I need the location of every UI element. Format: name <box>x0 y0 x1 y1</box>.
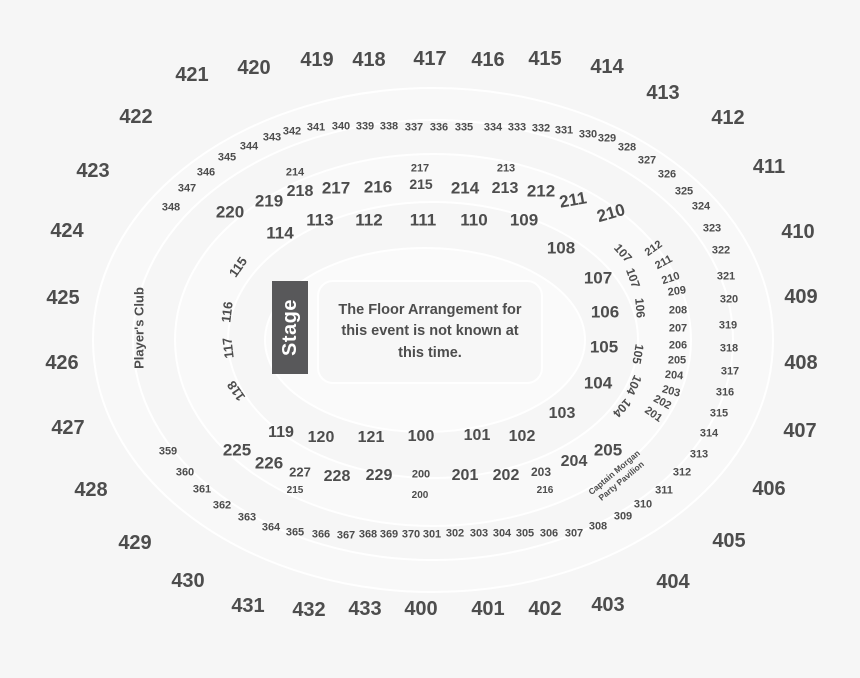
section-label-208[interactable]: 208 <box>669 306 687 317</box>
section-label-108[interactable]: 108 <box>547 240 575 257</box>
section-label-112[interactable]: 112 <box>355 212 382 229</box>
section-label-430[interactable]: 430 <box>171 571 204 591</box>
section-label-119[interactable]: 119 <box>268 425 294 441</box>
section-label-432[interactable]: 432 <box>292 600 325 620</box>
section-label-204[interactable]: 204 <box>664 370 683 383</box>
section-label-329[interactable]: 329 <box>598 134 616 145</box>
section-label-113[interactable]: 113 <box>306 212 333 229</box>
section-label-343[interactable]: 343 <box>263 133 281 144</box>
floor-note-line3: this time. <box>398 343 462 364</box>
section-label-316[interactable]: 316 <box>716 388 734 399</box>
section-label-368[interactable]: 368 <box>359 530 377 541</box>
section-label-365[interactable]: 365 <box>286 528 304 539</box>
section-label-312[interactable]: 312 <box>673 468 691 479</box>
section-label-110[interactable]: 110 <box>460 212 487 229</box>
section-label-426[interactable]: 426 <box>45 353 78 373</box>
section-label-410[interactable]: 410 <box>781 222 814 242</box>
section-label-369[interactable]: 369 <box>380 530 398 541</box>
section-label-328[interactable]: 328 <box>618 143 636 154</box>
section-label-314[interactable]: 314 <box>700 429 718 440</box>
section-label-336[interactable]: 336 <box>430 123 448 134</box>
section-label-214[interactable]: 214 <box>451 180 479 197</box>
section-label-338[interactable]: 338 <box>380 122 398 133</box>
section-label-342[interactable]: 342 <box>283 127 301 138</box>
section-label-228[interactable]: 228 <box>324 469 351 485</box>
section-label-427[interactable]: 427 <box>51 418 84 438</box>
section-label-306[interactable]: 306 <box>540 529 558 540</box>
section-label-226[interactable]: 226 <box>255 455 283 472</box>
section-label-401[interactable]: 401 <box>471 599 504 619</box>
section-label-114[interactable]: 114 <box>266 225 293 242</box>
section-label-302[interactable]: 302 <box>446 529 464 540</box>
section-label-323[interactable]: 323 <box>703 224 721 235</box>
section-label-424[interactable]: 424 <box>50 221 83 241</box>
section-label-347[interactable]: 347 <box>178 184 196 195</box>
section-label-111[interactable]: 111 <box>410 212 437 229</box>
section-label-213[interactable]: 213 <box>497 164 515 175</box>
section-label-315[interactable]: 315 <box>710 409 728 420</box>
section-label-311[interactable]: 311 <box>655 486 673 497</box>
section-label-310[interactable]: 310 <box>634 500 652 511</box>
section-label-216[interactable]: 216 <box>537 486 554 496</box>
section-label-301[interactable]: 301 <box>423 530 441 541</box>
section-label-308[interactable]: 308 <box>589 522 607 533</box>
section-label-344[interactable]: 344 <box>240 142 258 153</box>
section-label-102[interactable]: 102 <box>509 429 536 445</box>
section-label-420[interactable]: 420 <box>237 58 270 78</box>
section-label-217[interactable]: 217 <box>411 164 429 175</box>
section-label-339[interactable]: 339 <box>356 122 374 133</box>
section-label-360[interactable]: 360 <box>176 468 194 479</box>
section-label-428[interactable]: 428 <box>74 480 107 500</box>
section-label-117[interactable]: 117 <box>220 337 235 359</box>
section-label-205[interactable]: 205 <box>594 442 622 459</box>
section-label-370[interactable]: 370 <box>402 530 420 541</box>
section-label-429[interactable]: 429 <box>118 533 151 553</box>
section-label-333[interactable]: 333 <box>508 123 526 134</box>
section-label-101[interactable]: 101 <box>464 428 491 444</box>
section-label-364[interactable]: 364 <box>262 523 280 534</box>
section-label-412[interactable]: 412 <box>711 108 744 128</box>
section-label-326[interactable]: 326 <box>658 170 676 181</box>
section-label-366[interactable]: 366 <box>312 530 330 541</box>
section-label-331[interactable]: 331 <box>555 126 573 137</box>
section-label-345[interactable]: 345 <box>218 153 236 164</box>
stage: Stage <box>272 281 308 374</box>
section-label-415[interactable]: 415 <box>528 49 561 69</box>
section-label-419[interactable]: 419 <box>300 50 333 70</box>
section-label-213[interactable]: 213 <box>492 181 519 197</box>
section-label-204[interactable]: 204 <box>561 454 588 470</box>
section-label-330[interactable]: 330 <box>579 130 597 141</box>
section-label-216[interactable]: 216 <box>364 179 392 196</box>
section-label-409[interactable]: 409 <box>784 287 817 307</box>
section-label-211[interactable]: 211 <box>558 189 588 211</box>
section-label-305[interactable]: 305 <box>516 529 534 540</box>
section-label-205[interactable]: 205 <box>668 356 686 367</box>
section-label-214[interactable]: 214 <box>286 168 304 179</box>
section-label-317[interactable]: 317 <box>721 367 739 378</box>
section-label-321[interactable]: 321 <box>717 272 735 283</box>
section-label-319[interactable]: 319 <box>719 321 737 332</box>
section-label-206[interactable]: 206 <box>669 341 687 352</box>
section-label-215[interactable]: 215 <box>287 486 304 496</box>
floor-note-line2: this event is not known at <box>341 321 518 342</box>
section-label-107[interactable]: 107 <box>584 270 612 287</box>
floor-note-line1: The Floor Arrangement for <box>338 300 521 321</box>
section-label-229[interactable]: 229 <box>366 468 393 484</box>
section-label-359[interactable]: 359 <box>159 447 177 458</box>
players-club-label: Player's Club <box>132 287 147 369</box>
section-label-335[interactable]: 335 <box>455 123 473 134</box>
section-label-106[interactable]: 106 <box>633 297 647 318</box>
section-label-405[interactable]: 405 <box>712 531 745 551</box>
section-label-367[interactable]: 367 <box>337 531 355 542</box>
section-label-348[interactable]: 348 <box>162 203 180 214</box>
section-label-433[interactable]: 433 <box>348 599 381 619</box>
section-label-100[interactable]: 100 <box>408 429 435 445</box>
section-label-304[interactable]: 304 <box>493 529 511 540</box>
section-label-417[interactable]: 417 <box>413 49 446 69</box>
section-label-327[interactable]: 327 <box>638 156 656 167</box>
section-label-220[interactable]: 220 <box>216 204 244 221</box>
section-label-418[interactable]: 418 <box>352 50 385 70</box>
section-label-340[interactable]: 340 <box>332 122 350 133</box>
section-label-212[interactable]: 212 <box>527 183 555 200</box>
section-label-325[interactable]: 325 <box>675 187 693 198</box>
section-label-200[interactable]: 200 <box>412 491 429 501</box>
section-label-324[interactable]: 324 <box>692 202 710 213</box>
seat-map: Stage The Floor Arrangement for this eve… <box>0 0 860 678</box>
section-label-425[interactable]: 425 <box>46 288 79 308</box>
stage-label: Stage <box>279 299 302 356</box>
section-label-106[interactable]: 106 <box>591 304 619 321</box>
section-label-105[interactable]: 105 <box>630 343 645 365</box>
section-label-404[interactable]: 404 <box>656 572 689 592</box>
section-label-225[interactable]: 225 <box>223 442 251 459</box>
section-label-307[interactable]: 307 <box>565 529 583 540</box>
section-label-109[interactable]: 109 <box>510 212 538 229</box>
section-label-414[interactable]: 414 <box>590 57 623 77</box>
section-label-303[interactable]: 303 <box>470 529 488 540</box>
section-label-363[interactable]: 363 <box>238 513 256 524</box>
section-label-334[interactable]: 334 <box>484 123 502 134</box>
section-label-362[interactable]: 362 <box>213 501 231 512</box>
floor-note: The Floor Arrangement for this event is … <box>317 280 543 384</box>
section-label-215[interactable]: 215 <box>409 177 432 191</box>
section-label-341[interactable]: 341 <box>307 123 325 134</box>
section-label-413[interactable]: 413 <box>646 83 679 103</box>
section-label-318[interactable]: 318 <box>720 344 738 355</box>
section-label-218[interactable]: 218 <box>287 184 314 200</box>
section-label-200[interactable]: 200 <box>412 470 430 481</box>
section-label-422[interactable]: 422 <box>119 107 152 127</box>
section-label-416[interactable]: 416 <box>471 50 504 70</box>
section-label-120[interactable]: 120 <box>308 430 335 446</box>
section-label-219[interactable]: 219 <box>255 193 283 210</box>
section-label-320[interactable]: 320 <box>720 295 738 306</box>
section-label-403[interactable]: 403 <box>591 595 624 615</box>
section-label-217[interactable]: 217 <box>322 180 350 197</box>
section-label-421[interactable]: 421 <box>175 65 208 85</box>
section-label-346[interactable]: 346 <box>197 168 215 179</box>
section-label-207[interactable]: 207 <box>669 324 687 335</box>
section-label-322[interactable]: 322 <box>712 246 730 257</box>
section-label-103[interactable]: 103 <box>549 406 576 422</box>
section-label-407[interactable]: 407 <box>783 421 816 441</box>
section-label-202[interactable]: 202 <box>493 468 520 484</box>
section-label-309[interactable]: 309 <box>614 512 632 523</box>
section-label-431[interactable]: 431 <box>231 596 264 616</box>
section-label-105[interactable]: 105 <box>590 339 618 356</box>
section-label-201[interactable]: 201 <box>452 468 479 484</box>
section-label-361[interactable]: 361 <box>193 485 211 496</box>
section-label-313[interactable]: 313 <box>690 450 708 461</box>
section-label-400[interactable]: 400 <box>404 599 437 619</box>
section-label-116[interactable]: 116 <box>219 301 234 323</box>
section-label-406[interactable]: 406 <box>752 479 785 499</box>
section-label-337[interactable]: 337 <box>405 123 423 134</box>
section-label-332[interactable]: 332 <box>532 124 550 135</box>
section-label-121[interactable]: 121 <box>358 430 385 446</box>
section-label-423[interactable]: 423 <box>76 161 109 181</box>
section-label-402[interactable]: 402 <box>528 599 561 619</box>
section-label-104[interactable]: 104 <box>584 375 612 392</box>
section-label-227[interactable]: 227 <box>289 466 311 479</box>
section-label-411[interactable]: 411 <box>753 157 785 177</box>
section-label-203[interactable]: 203 <box>531 466 551 478</box>
section-label-408[interactable]: 408 <box>784 353 817 373</box>
